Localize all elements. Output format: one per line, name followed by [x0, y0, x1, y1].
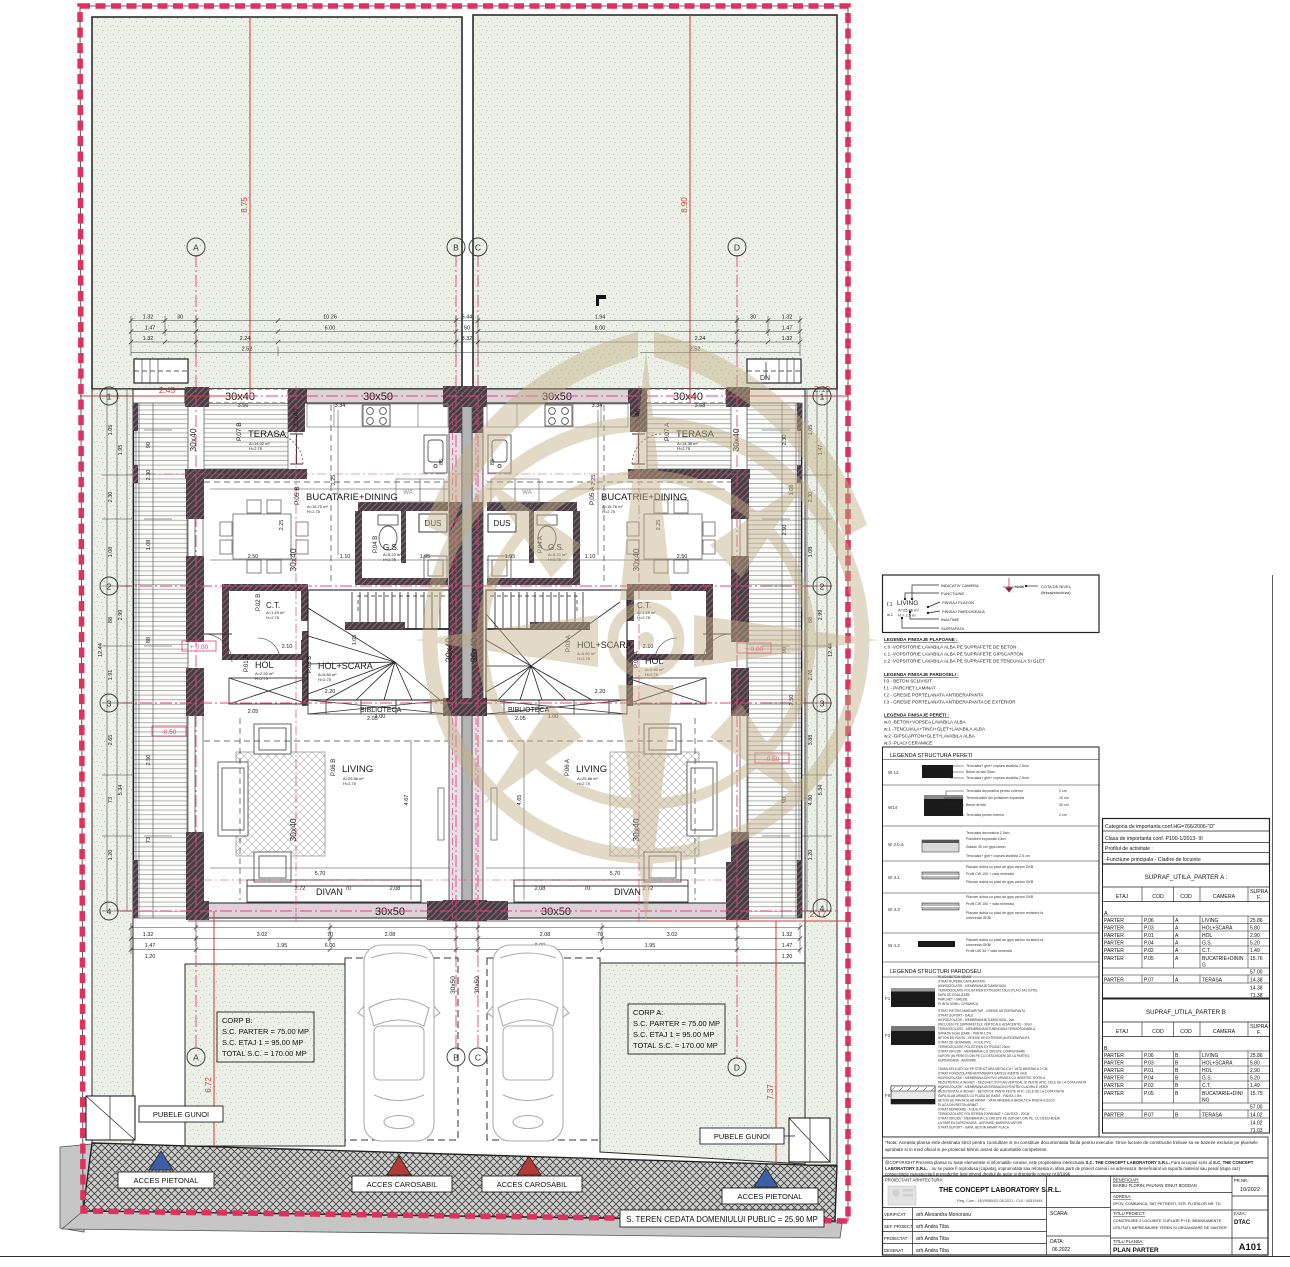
- svg-text:C: C: [475, 1053, 481, 1063]
- svg-text:PARTER: PARTER: [1104, 1061, 1124, 1067]
- svg-text:Polistiren expandat 10cm: Polistiren expandat 10cm: [966, 837, 1006, 841]
- svg-text:w.3 -PLACI CERAMICE: w.3 -PLACI CERAMICE: [884, 741, 933, 746]
- svg-text:90: 90: [146, 442, 152, 448]
- svg-text:3.34: 3.34: [592, 403, 603, 409]
- svg-text:85: 85: [490, 459, 496, 465]
- svg-text:1.95: 1.95: [277, 943, 288, 949]
- svg-text:5.44: 5.44: [462, 315, 473, 321]
- svg-text:f.0 - BETON SCLIVISIT: f.0 - BETON SCLIVISIT: [884, 679, 932, 684]
- svg-text:25.86: 25.86: [1250, 918, 1263, 924]
- svg-text:H=2.75: H=2.75: [602, 509, 616, 514]
- svg-text:H=2.75: H=2.75: [677, 446, 691, 451]
- svg-text:P.01: P.01: [1144, 1068, 1154, 1074]
- svg-text:1.95: 1.95: [645, 943, 656, 949]
- svg-text:c.1 -VOPSITORIE LAVABILA ALBA: c.1 -VOPSITORIE LAVABILA ALBA PE SUPRAFE…: [884, 652, 1023, 657]
- svg-text:1.10: 1.10: [585, 554, 596, 560]
- svg-text:LIVING: LIVING: [1202, 918, 1219, 924]
- svg-text:PARTER: PARTER: [1104, 1068, 1124, 1074]
- svg-text:P.06: P.06: [1144, 1053, 1154, 1059]
- svg-text:STRAT SUPORT - SAPA; BETON ARM: STRAT SUPORT - SAPA; BETON ARMAT PLACA: [938, 1126, 1010, 1130]
- svg-text:BUCATARIE+DINING: BUCATARIE+DINING: [306, 492, 398, 503]
- svg-text:STRAT FONOIZOLATIE/ANTIVIBRATI: STRAT FONOIZOLATIE/ANTIVIBRATII SAPELE I…: [938, 1072, 1027, 1076]
- svg-text:ETAJ: ETAJ: [1116, 894, 1129, 900]
- svg-text:2.52: 2.52: [242, 347, 253, 353]
- svg-text:LIVING: LIVING: [897, 600, 918, 607]
- svg-text:Placare dubla cu placi de gips: Placare dubla cu placi de gips carton GK…: [966, 880, 1034, 884]
- svg-text:1.10: 1.10: [340, 554, 351, 560]
- svg-text:2.99: 2.99: [118, 610, 124, 621]
- svg-text:5.80: 5.80: [1250, 926, 1260, 932]
- svg-text:70: 70: [327, 932, 333, 938]
- svg-text:10.26: 10.26: [323, 315, 337, 321]
- svg-text:30: 30: [177, 315, 183, 321]
- svg-text:B: B: [1175, 1083, 1179, 1089]
- svg-text:aprobate si in mod oficial si: aprobate si in mod oficial si pe proiect…: [885, 1147, 1047, 1152]
- svg-text:HOL+SCARA: HOL+SCARA: [1202, 1061, 1233, 1067]
- svg-text:HOL: HOL: [1202, 933, 1213, 939]
- svg-text:-0.50: -0.50: [162, 729, 177, 736]
- svg-text:BIBLIOTECA: BIBLIOTECA: [360, 707, 402, 714]
- svg-text:STRAT SEPARARE - FOLIE PVC: STRAT SEPARARE - FOLIE PVC: [938, 1108, 986, 1112]
- svg-text:BUCATRIE+DININ: BUCATRIE+DININ: [1202, 956, 1244, 962]
- svg-text:arh.Andra Tiba: arh.Andra Tiba: [916, 1248, 949, 1254]
- svg-text:2 cm: 2 cm: [1059, 789, 1067, 793]
- svg-text:71.38: 71.38: [1250, 993, 1263, 999]
- svg-text:P.03: P.03: [1144, 1061, 1154, 1067]
- svg-text:c.0 -VOPSITORIE LAVABILA ALBA: c.0 -VOPSITORIE LAVABILA ALBA PE SUPRAFE…: [884, 645, 1016, 650]
- svg-text:COD: COD: [1152, 894, 1164, 900]
- svg-text:PARTER: PARTER: [1104, 918, 1124, 924]
- svg-text:2.05: 2.05: [248, 709, 259, 715]
- svg-text:3.88: 3.88: [808, 735, 814, 746]
- svg-text:5.70: 5.70: [315, 871, 326, 877]
- svg-text:ACCES PIETONAL: ACCES PIETONAL: [134, 1176, 199, 1185]
- svg-text:P.01: P.01: [1144, 933, 1154, 939]
- svg-text:70: 70: [345, 886, 351, 892]
- svg-text:1.32: 1.32: [143, 932, 154, 938]
- svg-text:NG: NG: [1202, 1098, 1210, 1104]
- svg-text:F.: F.: [1257, 1030, 1261, 1036]
- svg-text:57.00: 57.00: [1250, 1105, 1263, 1111]
- svg-text:2.24: 2.24: [240, 336, 251, 342]
- svg-text:DUS: DUS: [494, 519, 511, 528]
- svg-text:3.34: 3.34: [335, 403, 346, 409]
- svg-text:15.75: 15.75: [1250, 1091, 1263, 1097]
- svg-text:71.03: 71.03: [1250, 1128, 1263, 1134]
- svg-text:S.C. PARTER = 75.00 MP: S.C. PARTER = 75.00 MP: [633, 1019, 720, 1028]
- svg-text:WA: WA: [403, 490, 412, 496]
- svg-text:W 3.1: W 3.1: [888, 875, 900, 880]
- svg-text:88: 88: [146, 637, 152, 643]
- svg-text:umezeala GKBI: umezeala GKBI: [966, 916, 991, 920]
- svg-text:SPOV, COMBANCA, SAT PETRESTI,: SPOV, COMBANCA, SAT PETRESTI, STR. FLORI…: [1113, 1202, 1221, 1206]
- svg-text:10/2022: 10/2022: [1240, 1187, 1260, 1193]
- svg-text:S.C. ETAJ 1 = 95.00 MP: S.C. ETAJ 1 = 95.00 MP: [222, 1038, 303, 1047]
- svg-text:Profil UW 30 + vata minerala: Profil UW 30 + vata minerala: [966, 949, 1012, 953]
- svg-text:CAMERA: CAMERA: [1213, 894, 1236, 900]
- svg-text:1.20: 1.20: [782, 954, 793, 960]
- svg-text:HOL: HOL: [255, 660, 274, 670]
- svg-text:A: A: [1175, 941, 1179, 947]
- svg-text:1.47: 1.47: [782, 326, 793, 332]
- svg-text:TERMOIZOLATIE POLISTIREN EXTRU: TERMOIZOLATIE POLISTIREN EXTRUDAT 20cm: [938, 1045, 1010, 1049]
- svg-text:25.86: 25.86: [1250, 1053, 1263, 1059]
- svg-text:30x50: 30x50: [474, 976, 481, 994]
- svg-text:B: B: [453, 243, 459, 253]
- svg-text:30x50: 30x50: [541, 906, 571, 918]
- svg-text:P.07: P.07: [1144, 978, 1154, 984]
- svg-text:2.30: 2.30: [146, 470, 152, 481]
- svg-text:TOTAL S.C. = 170.00 MP: TOTAL S.C. = 170.00 MP: [222, 1049, 307, 1058]
- svg-text:1.94: 1.94: [595, 315, 606, 321]
- svg-text:Tencuiala decorativa 2.5cm: Tencuiala decorativa 2.5cm: [966, 831, 1010, 835]
- svg-text:FUNCTIUNE: FUNCTIUNE: [941, 591, 964, 596]
- svg-text:4.67: 4.67: [404, 795, 410, 806]
- svg-text:TERMOIZOLATIE POLISTIREN EXPAN: TERMOIZOLATIE POLISTIREN EXPANDAT + CAVI…: [938, 1112, 1030, 1116]
- svg-text:PUBELE GUNOI: PUBELE GUNOI: [153, 1110, 209, 1119]
- svg-text:30x40: 30x40: [288, 548, 298, 571]
- svg-text:TOTAL S.C. = 170.00 MP: TOTAL S.C. = 170.00 MP: [633, 1041, 718, 1050]
- svg-text:W 4.2: W 4.2: [888, 943, 900, 948]
- svg-text:2.08: 2.08: [390, 886, 401, 892]
- svg-text:COD: COD: [1180, 894, 1192, 900]
- svg-text:LEGENDA FINISAJE PERETI :: LEGENDA FINISAJE PERETI :: [884, 713, 949, 718]
- svg-text:P.05: P.05: [1144, 956, 1154, 962]
- svg-text:1.05: 1.05: [108, 425, 114, 436]
- svg-text:@COPYRIGHT:Prezenta plansa cu: @COPYRIGHT:Prezenta plansa cu toate elem…: [885, 1160, 1254, 1165]
- svg-text:P.02: P.02: [1144, 948, 1154, 954]
- svg-text:8.75: 8.75: [240, 197, 249, 213]
- svg-text:P.02 B: P.02 B: [256, 594, 262, 611]
- svg-text:30x50: 30x50: [375, 906, 405, 918]
- svg-text:H=2.75: H=2.75: [255, 676, 269, 681]
- svg-text:3.56: 3.56: [238, 403, 249, 409]
- svg-text:BIBLIOTECA: BIBLIOTECA: [508, 707, 550, 714]
- svg-text:HIDROIZOLATIE - MEMBRANA BITUM: HIDROIZOLATIE - MEMBRANA BITUMINOASA: [938, 984, 1007, 988]
- svg-text:WA: WA: [522, 490, 531, 496]
- svg-text:ADRESA:: ADRESA:: [1113, 1194, 1131, 1199]
- svg-text:30x40: 30x40: [188, 428, 198, 451]
- svg-text:LEGENDA STRUCTURA PERETI: LEGENDA STRUCTURA PERETI: [890, 753, 973, 759]
- svg-text:1.95: 1.95: [420, 554, 431, 560]
- svg-text:A: A: [1175, 933, 1179, 939]
- svg-text:Tencuiala decorativa pentru e: Tencuiala decorativa pentru exterior: [966, 789, 1024, 793]
- svg-text:1.05: 1.05: [352, 635, 358, 646]
- svg-text:Beton armat 30cm: Beton armat 30cm: [966, 770, 995, 774]
- svg-text:FINISAJ PLAFON: FINISAJ PLAFON: [942, 600, 974, 605]
- svg-text:SEF. PROIECT: SEF. PROIECT: [884, 1224, 913, 1229]
- svg-text:H=2.75: H=2.75: [343, 781, 357, 786]
- svg-text:H=2.75: H=2.75: [307, 509, 321, 514]
- svg-text:BARBU FLORIN; PAUNAN IONUT BOG: BARBU FLORIN; PAUNAN IONUT BOGDAN: [1113, 1183, 1197, 1188]
- svg-text:8.90: 8.90: [680, 197, 689, 213]
- svg-text:f.1 - PARCHET LAMINAT: f.1 - PARCHET LAMINAT: [884, 686, 936, 691]
- svg-text:P.06 A: P.06 A: [565, 759, 571, 776]
- svg-text:Tencuiala+ glet+ vopsea lavabi: Tencuiala+ glet+ vopsea lavabila 2.5cm: [966, 776, 1029, 780]
- svg-text:S. TEREN CEDATA DOMENIULUI PUB: S. TEREN CEDATA DOMENIULUI PUBLIC = 25.9…: [626, 1215, 818, 1224]
- svg-text:2.50: 2.50: [677, 554, 688, 560]
- svg-text:SUPRAF_UTILA_PARTER A :: SUPRAF_UTILA_PARTER A :: [1145, 874, 1228, 881]
- svg-text:2.50: 2.50: [782, 525, 788, 536]
- svg-text:HOL+SCARA: HOL+SCARA: [318, 661, 373, 671]
- svg-text:PARTER: PARTER: [1104, 1083, 1124, 1089]
- svg-text:TERASA: TERASA: [1202, 1113, 1223, 1119]
- svg-text:PARTER: PARTER: [1104, 926, 1124, 932]
- svg-text:4: 4: [820, 904, 825, 914]
- svg-text:w.0 -BETON+VOPSEA LAVABILA ALB: w.0 -BETON+VOPSEA LAVABILA ALBA: [884, 720, 967, 725]
- svg-text:P.06: P.06: [1144, 918, 1154, 924]
- svg-text:SCARA:: SCARA:: [1050, 1211, 1069, 1217]
- svg-text:12.44: 12.44: [98, 643, 104, 657]
- svg-text:8.00: 8.00: [595, 326, 606, 332]
- svg-text:3.02: 3.02: [257, 932, 268, 938]
- svg-text:H=2.75: H=2.75: [266, 615, 280, 620]
- svg-text:CORP A:: CORP A:: [633, 1008, 663, 1017]
- svg-text:2.90: 2.90: [1250, 933, 1260, 939]
- svg-text:1: 1: [107, 392, 112, 402]
- svg-text:F6: F6: [885, 1093, 891, 1098]
- svg-text:SUPRAFATA: SUPRAFATA: [941, 626, 965, 631]
- svg-text:A: A: [1175, 978, 1179, 984]
- svg-text:HOL: HOL: [1202, 1068, 1213, 1074]
- svg-text:SAPA DE EGALIZARE: SAPA DE EGALIZARE: [938, 993, 970, 997]
- svg-text:W 2.b.a: W 2.b.a: [888, 842, 904, 847]
- svg-text:A: A: [193, 243, 199, 253]
- svg-text:LIVING: LIVING: [342, 764, 373, 775]
- svg-text:-Functiune principala - Cladir: -Functiune principala - Cladire de locui…: [1105, 857, 1201, 863]
- svg-text:3.68: 3.68: [695, 403, 706, 409]
- svg-text:Profilul de activitate :: Profilul de activitate :: [1105, 846, 1153, 852]
- svg-text:FAZA:: FAZA:: [1234, 1211, 1246, 1216]
- svg-text:2.50: 2.50: [146, 755, 152, 766]
- svg-text:2.90: 2.90: [1250, 1068, 1260, 1074]
- svg-text:14.02: 14.02: [1250, 1113, 1263, 1119]
- svg-text:COD: COD: [1180, 1029, 1192, 1035]
- svg-text:Categoria de importanta conf.H: Categoria de importanta conf.HG=766/2006…: [1105, 824, 1215, 830]
- svg-text:1.08: 1.08: [108, 547, 114, 558]
- svg-text:B: B: [1175, 1061, 1179, 1067]
- svg-text:2.05: 2.05: [515, 716, 526, 722]
- svg-text:UTILITATI, IMPREJMUIRE TEREN S: UTILITATI, IMPREJMUIRE TEREN SI ORGANIZA…: [1113, 1226, 1227, 1230]
- svg-text:PARTER: PARTER: [1104, 941, 1124, 947]
- svg-text:c.2 -VOPSITORIE LAVABILA ALBA: c.2 -VOPSITORIE LAVABILA ALBA PE SUPRAFE…: [884, 659, 1045, 664]
- svg-text:Profil CW 100 + vata minerala: Profil CW 100 + vata minerala: [966, 872, 1014, 876]
- svg-text:PLINTA LEMN / CERAMICA: PLINTA LEMN / CERAMICA: [938, 1002, 979, 1006]
- svg-text:70: 70: [597, 932, 603, 938]
- svg-text:STRAT DE SEPARARE - FOLIE PVC: STRAT DE SEPARARE - FOLIE PVC: [938, 1041, 992, 1045]
- svg-text:Termoizolatie din polistiren e: Termoizolatie din polistiren expandat: [966, 796, 1024, 800]
- svg-text:15.76: 15.76: [1250, 956, 1263, 962]
- svg-text:30 cm: 30 cm: [1059, 803, 1069, 807]
- svg-text:HIDROIZOLATIE - MEMBRANA ANTIR: HIDROIZOLATIE - MEMBRANA ANTIRADACINI PE…: [938, 1085, 1048, 1089]
- svg-text:LEGENDA FINISAJE PARDOSELI :: LEGENDA FINISAJE PARDOSELI :: [884, 672, 959, 677]
- svg-text:1.95: 1.95: [118, 445, 124, 456]
- svg-text:PROIECTAT: PROIECTAT: [884, 1236, 908, 1241]
- svg-text:PARTER: PARTER: [1104, 933, 1124, 939]
- svg-text:2.65: 2.65: [108, 735, 114, 746]
- svg-text:10 cm: 10 cm: [1059, 796, 1069, 800]
- svg-text:P.03 B: P.03 B: [307, 656, 313, 673]
- svg-text:2: 2: [820, 582, 825, 592]
- svg-text:A: A: [193, 1053, 199, 1063]
- svg-text:PLACA BETON ARMAT: PLACA BETON ARMAT: [938, 975, 972, 979]
- svg-text:30: 30: [750, 315, 756, 321]
- svg-text:Placare dubla cu placi de gips: Placare dubla cu placi de gips carton re…: [966, 938, 1043, 942]
- svg-text:G.S.: G.S.: [1202, 1076, 1212, 1082]
- svg-text:(INCLUSIV PE SUPRAFETELE VERTI: (INCLUSIV PE SUPRAFETELE VERTICALE ADIAC…: [938, 1023, 1032, 1027]
- svg-text:w.1 -TENCUIALA+TINCI+GLET+LAVA: w.1 -TENCUIALA+TINCI+GLET+LAVABILA ALBA: [884, 727, 986, 732]
- svg-text:TITLU PROIECT:: TITLU PROIECT:: [1113, 1211, 1145, 1216]
- svg-text:Profil CW 100 + vata minerala: Profil CW 100 + vata minerala: [966, 902, 1014, 906]
- svg-text:Placare dubla cu placi de gips: Placare dubla cu placi de gips carton GK…: [966, 895, 1034, 899]
- svg-text:A: A: [1175, 926, 1179, 932]
- svg-text:5.70: 5.70: [610, 871, 621, 877]
- svg-text:2.72: 2.72: [295, 886, 306, 892]
- svg-text:1.49: 1.49: [1250, 1083, 1260, 1089]
- svg-text:2 cm: 2 cm: [1059, 813, 1067, 817]
- svg-text:W 12: W 12: [888, 770, 899, 775]
- svg-text:1.91: 1.91: [108, 670, 114, 681]
- svg-text:H=2.75: H=2.75: [318, 677, 332, 682]
- svg-text:D: D: [734, 243, 740, 253]
- svg-text:arh.Andra Tiba: arh.Andra Tiba: [916, 1236, 949, 1242]
- svg-text:PLACA DIN BETON ARMAT: PLACA DIN BETON ARMAT: [938, 1103, 978, 1107]
- svg-text:1.49: 1.49: [1250, 948, 1260, 954]
- svg-text:ACCES CAROSABIL: ACCES CAROSABIL: [497, 1180, 568, 1189]
- svg-text:5.34: 5.34: [118, 785, 124, 796]
- svg-text:P.01 B: P.01 B: [244, 655, 250, 672]
- svg-text:1.20: 1.20: [808, 850, 814, 861]
- svg-text:A: A: [1175, 956, 1179, 962]
- svg-text:TAVAN APLICAT/CAV PE STRUCTURA: TAVAN APLICAT/CAV PE STRUCTURA METALICA …: [938, 1067, 1048, 1071]
- svg-text:85: 85: [439, 459, 445, 465]
- svg-text:COD: COD: [1152, 1029, 1164, 1035]
- svg-text:1.08: 1.08: [146, 540, 152, 551]
- svg-text:1.32: 1.32: [782, 315, 793, 321]
- svg-text:PARTER: PARTER: [1104, 1091, 1124, 1097]
- svg-text:HOL+SCARA: HOL+SCARA: [1202, 926, 1233, 932]
- svg-text:5.34: 5.34: [818, 785, 824, 796]
- svg-text:PARCHET / GRESIE: PARCHET / GRESIE: [938, 998, 968, 1002]
- svg-text:SAPA DE EGALIZARE - PANTA 1.5%: SAPA DE EGALIZARE - PANTA 1.5%: [938, 1032, 991, 1036]
- svg-text:STRAT DIFUZIE - MEMBRANA CU CR: STRAT DIFUZIE - MEMBRANA CU CRESTE PE SU…: [938, 1117, 1060, 1121]
- svg-text:PARTER: PARTER: [1104, 948, 1124, 954]
- svg-text:COTA DE NIVEL: COTA DE NIVEL: [1041, 584, 1072, 589]
- svg-text:TERASA: TERASA: [1202, 978, 1223, 984]
- svg-text:DIVAN: DIVAN: [614, 887, 641, 897]
- svg-text:ETAJ: ETAJ: [1116, 1029, 1129, 1035]
- svg-text:H=2.75: H=2.75: [249, 446, 263, 451]
- svg-text:DATA:: DATA:: [1050, 1239, 1064, 1245]
- svg-text:LEGENDA FINISAJE PLAFOANE :: LEGENDA FINISAJE PLAFOANE :: [884, 637, 958, 642]
- svg-text:8.32: 8.32: [462, 336, 473, 342]
- svg-text:Placare dubla cu placi de gips: Placare dubla cu placi de gips carton re…: [966, 911, 1043, 915]
- svg-text:H=2.75: H=2.75: [383, 557, 397, 562]
- svg-text:30x50: 30x50: [363, 391, 393, 403]
- svg-text:Tencuiala+ glet+ vopsea lavabi: Tencuiala+ glet+ vopsea lavabila 2.5cm: [966, 764, 1029, 768]
- svg-text:2.20: 2.20: [325, 689, 336, 695]
- svg-text:14.38: 14.38: [1250, 978, 1263, 984]
- svg-text:BENEFICIAR:: BENEFICIAR:: [1113, 1178, 1139, 1183]
- svg-text:INDICATIV CAMERA: INDICATIV CAMERA: [941, 583, 979, 588]
- svg-text:1.47: 1.47: [145, 943, 156, 949]
- svg-text:STRAT DIFUZIE - MEMBRANA CU CR: STRAT DIFUZIE - MEMBRANA CU CRESTE COMPE…: [938, 1050, 1025, 1054]
- svg-text:C.T.: C.T.: [1202, 1083, 1211, 1089]
- svg-text:DTAC: DTAC: [1234, 1220, 1251, 1226]
- svg-text:LIVING: LIVING: [576, 764, 607, 775]
- svg-text:PARTER: PARTER: [1104, 956, 1124, 962]
- svg-text:f.1: f.1: [887, 602, 893, 608]
- svg-text:88: 88: [108, 617, 114, 623]
- svg-text:*Nota: Aceasta plansa este des: *Nota: Aceasta plansa este destinata str…: [885, 1140, 1258, 1145]
- svg-text:PR.NR.:: PR.NR.:: [1234, 1178, 1249, 1183]
- svg-text:CAMERA: CAMERA: [1213, 1029, 1236, 1035]
- svg-text:5.20: 5.20: [1250, 1076, 1260, 1082]
- svg-text:Tencuiala pentru interior: Tencuiala pentru interior: [966, 813, 1005, 817]
- svg-text:Clasa de importanta conf. P100: Clasa de importanta conf. P100-1/2013- I…: [1105, 836, 1203, 842]
- svg-text:P.06 B: P.06 B: [331, 759, 337, 776]
- svg-text:arh.Alexandra Monoranu: arh.Alexandra Monoranu: [916, 1212, 971, 1218]
- svg-text:S.C. PARTER = 75.00 MP: S.C. PARTER = 75.00 MP: [222, 1027, 309, 1036]
- svg-text:W 3.3: W 3.3: [888, 907, 900, 912]
- svg-text:STRAT RUPERE CAPILARITATE: STRAT RUPERE CAPILARITATE: [938, 980, 985, 984]
- svg-text:F1: F1: [885, 996, 891, 1001]
- svg-text:PROIECTANT ARHITECTURA:: PROIECTANT ARHITECTURA:: [885, 1178, 943, 1183]
- svg-text:1.32: 1.32: [782, 336, 793, 342]
- svg-text:F3: F3: [885, 1033, 891, 1038]
- svg-text:BETON DE PANTA - GRESIE DE EXT: BETON DE PANTA - GRESIE DE EXTERIOR ANTI…: [938, 1036, 1030, 1040]
- svg-text:(finisaj/structura): (finisaj/structura): [1041, 590, 1071, 595]
- svg-text:1.08: 1.08: [808, 547, 814, 558]
- svg-text:4: 4: [107, 907, 112, 917]
- svg-text:PLAN PARTER: PLAN PARTER: [1113, 1247, 1159, 1254]
- svg-text:P.05: P.05: [1144, 1091, 1154, 1097]
- svg-text:G.S.: G.S.: [1202, 941, 1212, 947]
- svg-text:2.08: 2.08: [535, 886, 546, 892]
- svg-text:1: 1: [820, 392, 825, 402]
- svg-text:B: B: [1175, 1076, 1179, 1082]
- svg-text:Reg. Com : J40/9580/02.08.2021: Reg. Com : J40/9580/02.08.2021 ; CUI : 4…: [957, 1199, 1043, 1203]
- svg-text:PUBELE GUNOI: PUBELE GUNOI: [714, 1132, 770, 1141]
- svg-text:2.99: 2.99: [818, 610, 824, 621]
- svg-text:6.00: 6.00: [325, 326, 336, 332]
- svg-text:3: 3: [107, 699, 112, 709]
- svg-text:2.10: 2.10: [282, 644, 293, 650]
- svg-text:30x50: 30x50: [450, 976, 457, 994]
- svg-text:THE CONCEPT LABORATORY S.R.L.: THE CONCEPT LABORATORY S.R.L.: [939, 1187, 1061, 1194]
- svg-text:Beton armat: Beton armat: [966, 803, 986, 807]
- svg-text:4.80: 4.80: [808, 795, 814, 806]
- svg-text:5.80: 5.80: [1250, 1061, 1260, 1067]
- svg-text:HIDROIZOLATIE - MEMBRANA DIN P: HIDROIZOLATIE - MEMBRANA DIN PVC ARMATA …: [938, 1076, 1046, 1080]
- svg-text:3: 3: [820, 699, 825, 709]
- svg-text:Zidarie 30 cm gips-beton: Zidarie 30 cm gips-beton: [966, 845, 1006, 849]
- svg-text:H=2.75: H=2.75: [637, 615, 651, 620]
- svg-text:1.32: 1.32: [782, 932, 793, 938]
- svg-text:W14: W14: [888, 805, 898, 810]
- svg-text:TITLU PLANSA:: TITLU PLANSA:: [1113, 1239, 1143, 1244]
- svg-text:BETON DE PANTA SLAB ARMAT - VA: BETON DE PANTA SLAB ARMAT - VATA MINERAL…: [938, 1099, 1055, 1103]
- svg-text:TERMOIZOLATIE POLISTIREN EXTRU: TERMOIZOLATIE POLISTIREN EXTRUDAT 10cm (…: [938, 989, 1037, 993]
- svg-text:BUCATARIE+DINI: BUCATARIE+DINI: [1202, 1091, 1243, 1097]
- svg-text:A: A: [1175, 948, 1179, 954]
- svg-text:30x40: 30x40: [293, 408, 300, 427]
- svg-text:CONSTRUIRE 2 LOCUINTE CUPLATE: CONSTRUIRE 2 LOCUINTE CUPLATE P+1E, BRAN…: [1113, 1219, 1222, 1223]
- svg-text:LIVING: LIVING: [1202, 1053, 1219, 1059]
- svg-text:DN: DN: [760, 375, 770, 382]
- svg-text:ACCES PIETONAL: ACCES PIETONAL: [738, 1192, 803, 1201]
- svg-text:2.08: 2.08: [540, 932, 551, 938]
